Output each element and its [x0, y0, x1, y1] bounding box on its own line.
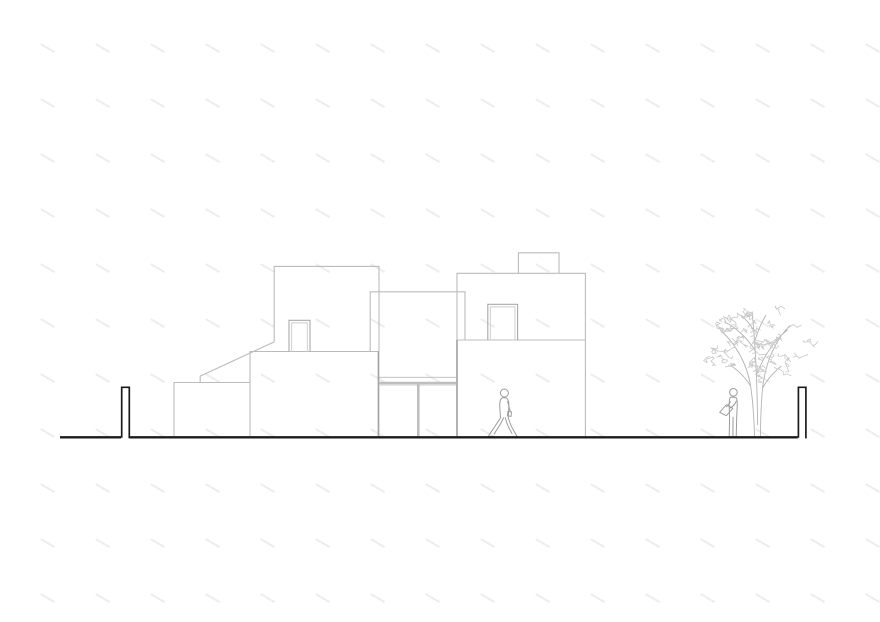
tick-mark	[592, 320, 604, 327]
tick-mark	[207, 210, 219, 217]
foliage-scribble	[768, 321, 775, 326]
tick-mark	[317, 540, 329, 547]
volume-right-upper	[457, 273, 585, 340]
tick-mark	[812, 265, 824, 272]
tick-mark	[97, 155, 109, 162]
walking-person	[488, 389, 517, 437]
tick-mark	[812, 430, 824, 437]
tick-mark	[812, 210, 824, 217]
foliage-scribble	[717, 355, 725, 360]
tick-mark	[702, 155, 714, 162]
foliage-scribble	[712, 349, 717, 354]
tick-mark	[537, 595, 549, 602]
volume-lower-left	[174, 383, 250, 438]
tick-mark	[647, 265, 659, 272]
elevation-drawing	[0, 0, 880, 622]
tick-mark	[372, 540, 384, 547]
tick-mark	[97, 430, 109, 437]
tick-mark	[757, 595, 769, 602]
tick-mark	[42, 100, 54, 107]
tick-mark	[427, 595, 439, 602]
tick-mark	[427, 210, 439, 217]
tick-mark	[97, 210, 109, 217]
tick-mark	[867, 375, 879, 382]
standing-person-head	[730, 389, 738, 397]
tick-mark	[97, 485, 109, 492]
tick-mark	[207, 155, 219, 162]
tick-mark	[42, 595, 54, 602]
tick-mark	[867, 540, 879, 547]
tick-mark	[152, 265, 164, 272]
tick-mark	[42, 375, 54, 382]
tick-mark	[702, 375, 714, 382]
standing-person-book	[720, 405, 733, 416]
tick-mark	[427, 100, 439, 107]
boundary-post-left	[122, 387, 130, 438]
tick-mark	[647, 155, 659, 162]
tick-mark	[867, 100, 879, 107]
tick-mark	[207, 540, 219, 547]
foliage-scribble	[741, 328, 747, 333]
tick-mark	[207, 375, 219, 382]
tick-mark	[647, 485, 659, 492]
tick-mark	[592, 540, 604, 547]
tick-mark	[867, 320, 879, 327]
entry-door-right-outer-frame	[488, 304, 518, 340]
tick-mark	[647, 100, 659, 107]
foliage-scribble	[758, 357, 764, 361]
tick-mark	[262, 375, 274, 382]
foliage-scribble	[737, 336, 744, 340]
entry-door-right-inner-frame	[490, 307, 515, 340]
tick-mark	[537, 430, 549, 437]
tick-mark	[867, 45, 879, 52]
tick-mark	[812, 320, 824, 327]
tick-mark	[757, 45, 769, 52]
tick-mark	[97, 100, 109, 107]
tick-mark	[757, 155, 769, 162]
tick-mark	[207, 100, 219, 107]
standing-person-body	[727, 397, 738, 437]
tick-mark	[152, 595, 164, 602]
tree-foliage	[704, 306, 818, 382]
tick-mark	[592, 485, 604, 492]
tick-mark	[647, 45, 659, 52]
tick-mark	[592, 265, 604, 272]
tick-mark	[537, 265, 549, 272]
tick-mark	[42, 540, 54, 547]
tick-mark	[42, 210, 54, 217]
tick-mark	[592, 595, 604, 602]
tick-mark	[537, 375, 549, 382]
tick-mark	[372, 265, 384, 272]
tick-mark	[372, 100, 384, 107]
tick-mark	[317, 485, 329, 492]
tick-mark	[592, 430, 604, 437]
tick-mark	[427, 540, 439, 547]
tick-mark	[482, 595, 494, 602]
tick-mark	[317, 430, 329, 437]
tick-mark	[537, 45, 549, 52]
tick-mark	[537, 540, 549, 547]
tick-mark	[867, 430, 879, 437]
tick-mark	[867, 595, 879, 602]
tick-mark	[537, 100, 549, 107]
tick-mark	[317, 265, 329, 272]
tick-mark	[372, 45, 384, 52]
tick-mark	[152, 210, 164, 217]
tick-mark	[702, 595, 714, 602]
tick-mark	[262, 595, 274, 602]
tick-mark	[647, 210, 659, 217]
tick-mark	[647, 430, 659, 437]
tick-mark	[592, 45, 604, 52]
tick-mark	[427, 375, 439, 382]
walking-person-body	[488, 398, 517, 437]
tick-mark	[812, 485, 824, 492]
tick-mark	[42, 45, 54, 52]
elevation-canvas	[0, 0, 880, 622]
foliage-scribble	[716, 322, 725, 329]
tick-mark	[372, 210, 384, 217]
foliage-scribble	[757, 374, 762, 383]
tick-mark	[482, 155, 494, 162]
tick-mark	[97, 375, 109, 382]
foliage-scribble	[724, 347, 735, 352]
tick-mark	[427, 430, 439, 437]
tick-mark	[537, 485, 549, 492]
tick-mark	[757, 265, 769, 272]
tick-mark	[317, 155, 329, 162]
tick-mark	[482, 485, 494, 492]
tick-mark	[152, 375, 164, 382]
tick-mark	[262, 430, 274, 437]
tick-mark	[702, 45, 714, 52]
building-elevation	[174, 253, 585, 437]
tick-mark	[647, 375, 659, 382]
tick-mark	[537, 320, 549, 327]
tick-mark	[702, 210, 714, 217]
tick-mark	[152, 100, 164, 107]
tick-mark	[592, 375, 604, 382]
tick-mark	[97, 265, 109, 272]
tick-mark	[427, 485, 439, 492]
tick-mark	[647, 320, 659, 327]
foliage-scribble	[721, 360, 727, 363]
boundary-post-right	[798, 387, 806, 438]
tick-mark	[867, 485, 879, 492]
tick-mark	[262, 320, 274, 327]
tick-mark	[702, 320, 714, 327]
tick-mark	[152, 45, 164, 52]
tick-mark	[757, 210, 769, 217]
tick-mark	[262, 485, 274, 492]
standing-person-reading	[720, 389, 738, 437]
tick-mark	[207, 595, 219, 602]
tick-mark	[97, 320, 109, 327]
tick-mark	[152, 320, 164, 327]
tick-mark	[317, 595, 329, 602]
volume-middle-upper	[370, 292, 465, 352]
tick-mark	[702, 430, 714, 437]
tick-mark	[592, 155, 604, 162]
tick-mark	[482, 540, 494, 547]
tick-mark	[262, 100, 274, 107]
tick-mark	[207, 265, 219, 272]
volume-right-lower	[457, 340, 585, 437]
tick-mark	[317, 210, 329, 217]
tick-mark	[812, 595, 824, 602]
foliage-scribble	[807, 340, 818, 347]
tick-mark	[647, 540, 659, 547]
entry-door-left	[289, 320, 310, 351]
foliage-scribble	[775, 306, 785, 315]
tick-mark	[317, 100, 329, 107]
tick-mark	[757, 430, 769, 437]
tick-mark	[317, 45, 329, 52]
tick-mark	[812, 375, 824, 382]
tick-mark	[702, 265, 714, 272]
tick-mark	[482, 375, 494, 382]
walking-person-head	[500, 389, 508, 397]
tick-mark	[812, 540, 824, 547]
tick-mark	[482, 45, 494, 52]
walking-person-hand-item	[507, 411, 511, 416]
tick-mark	[757, 485, 769, 492]
tick-mark	[317, 375, 329, 382]
tick-mark	[482, 210, 494, 217]
tick-mark	[482, 265, 494, 272]
tick-mark	[372, 595, 384, 602]
tick-mark	[757, 100, 769, 107]
tick-mark	[262, 210, 274, 217]
tick-mark	[262, 155, 274, 162]
tree	[704, 306, 818, 437]
tick-mark	[372, 320, 384, 327]
tick-mark	[702, 100, 714, 107]
tick-mark	[207, 320, 219, 327]
tick-mark	[867, 210, 879, 217]
tick-mark	[152, 540, 164, 547]
tick-mark	[702, 540, 714, 547]
foliage-scribble	[793, 353, 808, 358]
tick-mark	[152, 430, 164, 437]
foliage-scribble	[752, 352, 768, 355]
tick-mark	[427, 265, 439, 272]
tick-mark	[42, 320, 54, 327]
foliage-scribble	[788, 325, 802, 329]
tick-mark	[647, 595, 659, 602]
tick-mark	[867, 155, 879, 162]
tick-mark	[702, 485, 714, 492]
tick-mark	[812, 45, 824, 52]
entry-door-right	[488, 304, 518, 340]
site-ground	[60, 387, 806, 438]
tick-mark	[592, 100, 604, 107]
tick-mark	[42, 430, 54, 437]
tick-mark	[42, 485, 54, 492]
tick-mark	[317, 320, 329, 327]
tick-mark	[207, 45, 219, 52]
tick-mark	[812, 155, 824, 162]
tick-mark	[262, 540, 274, 547]
entry-door-left-inner-frame	[292, 323, 308, 352]
tick-mark	[42, 155, 54, 162]
tick-mark	[537, 210, 549, 217]
volume-lower-middle	[250, 352, 379, 438]
tick-mark	[97, 45, 109, 52]
tick-mark	[537, 155, 549, 162]
tick-mark	[757, 540, 769, 547]
tick-mark	[592, 210, 604, 217]
tick-mark	[207, 485, 219, 492]
tick-mark	[207, 430, 219, 437]
tick-mark	[427, 320, 439, 327]
tick-mark	[152, 155, 164, 162]
tick-mark	[812, 100, 824, 107]
tick-mark	[262, 265, 274, 272]
tick-mark	[97, 595, 109, 602]
foliage-scribble	[767, 354, 775, 360]
foliage-scribble	[720, 318, 726, 324]
tick-mark	[97, 540, 109, 547]
tick-mark	[152, 485, 164, 492]
tick-mark	[262, 45, 274, 52]
volume-upper-left	[274, 266, 379, 351]
tick-mark	[427, 155, 439, 162]
tick-mark	[867, 265, 879, 272]
tick-mark	[372, 155, 384, 162]
tick-mark	[42, 265, 54, 272]
tick-mark	[482, 100, 494, 107]
tick-mark	[372, 485, 384, 492]
roof-box	[518, 253, 559, 273]
tick-mark	[427, 45, 439, 52]
glass-recess	[379, 383, 456, 437]
